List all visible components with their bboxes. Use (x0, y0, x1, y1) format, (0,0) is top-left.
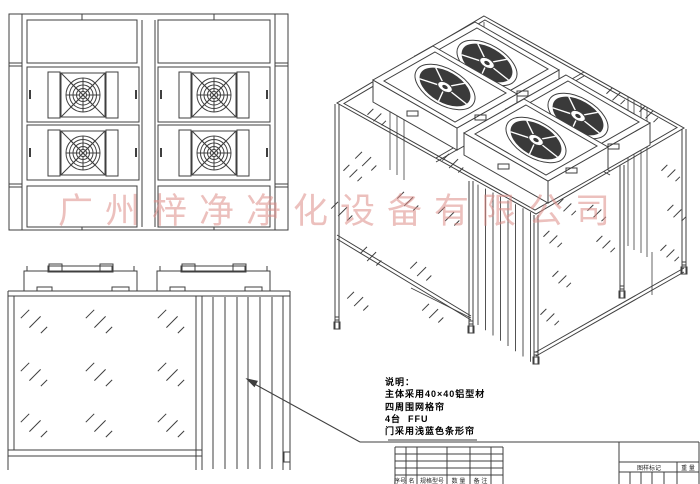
drawing-sheet: 广州梓净净化设备有限公司 说明： 主体采用40×40铝型材 四周围网格帘 4台 … (0, 0, 700, 484)
cad-linework (0, 0, 700, 484)
bom-header-spec: 规格型号 (417, 476, 447, 484)
note-line-1: 主体采用40×40铝型材 (385, 388, 485, 400)
note-line-4: 门采用浅蓝色条形帘 (385, 425, 485, 437)
bom-header-name: 名称 (406, 476, 417, 484)
front-view-elevation (8, 264, 290, 470)
note-line-3: 4台 FFU (385, 413, 485, 425)
bom-header-seq: 序号 (394, 476, 406, 484)
note-line-2: 四周围网格帘 (385, 401, 485, 413)
bom-header-qty: 数 量 (447, 476, 470, 484)
notes-block: 说明： 主体采用40×40铝型材 四周围网格帘 4台 FFU 门采用浅蓝色条形帘 (385, 376, 485, 437)
title-block-weight-label: 重 量 (678, 463, 698, 472)
leader-arrow (247, 379, 360, 442)
title-block-mark-label: 图样标记 (628, 463, 670, 472)
bom-header-remark: 备 注 (470, 476, 491, 484)
watermark-text: 广州梓净净化设备有限公司 (58, 183, 622, 234)
notes-title: 说明： (385, 376, 485, 388)
